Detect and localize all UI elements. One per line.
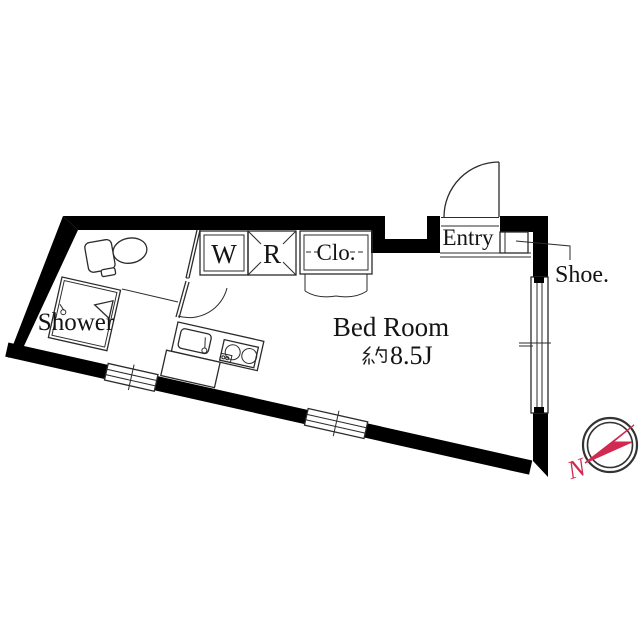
window-frame	[531, 277, 548, 413]
bedroom-label: Bed Room	[333, 312, 449, 342]
refrigerator-label: R	[263, 239, 281, 269]
shoe-cabinet	[500, 232, 528, 253]
closet-label: Clo.	[317, 240, 356, 265]
entry-label: Entry	[442, 225, 494, 250]
wall-top	[63, 216, 385, 230]
floor-plan-svg: Shower W R Clo.	[0, 0, 640, 640]
window-cap-top	[534, 277, 544, 283]
window-cap-bottom	[534, 407, 544, 413]
toilet-seat-hinge	[101, 268, 116, 277]
shoe-label: Shoe.	[555, 262, 609, 288]
washer-label: W	[211, 239, 237, 269]
bedroom-area-label: 8.5J	[390, 341, 433, 370]
shower-label: Shower	[38, 309, 115, 336]
floor-plan-page: Shower W R Clo.	[0, 0, 640, 640]
